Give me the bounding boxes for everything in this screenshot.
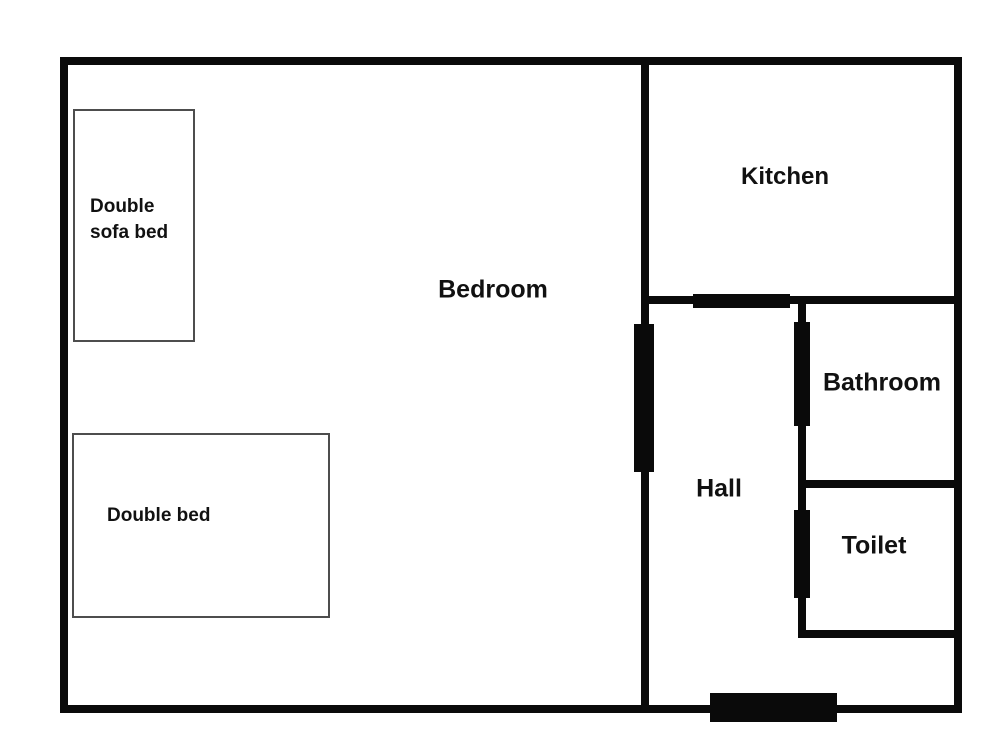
bedroom-label: Bedroom (438, 276, 548, 305)
door-bathroom (794, 322, 810, 426)
bathroom-label: Bathroom (823, 369, 941, 398)
door-toilet (794, 510, 810, 598)
hall-label: Hall (696, 475, 742, 504)
wall-bathroom-toilet-divider (798, 480, 962, 488)
sofa-bed-label: Double sofa bed (90, 194, 180, 246)
wall-toilet-bottom (798, 630, 962, 638)
door-entrance (710, 693, 837, 722)
toilet-label: Toilet (842, 532, 907, 561)
floor-plan: Bedroom Kitchen Bathroom Hall Toilet Dou… (0, 0, 1000, 730)
door-bedroom (634, 324, 654, 472)
double-bed-label: Double bed (107, 503, 210, 529)
kitchen-label: Kitchen (741, 163, 829, 191)
door-kitchen (693, 294, 790, 308)
